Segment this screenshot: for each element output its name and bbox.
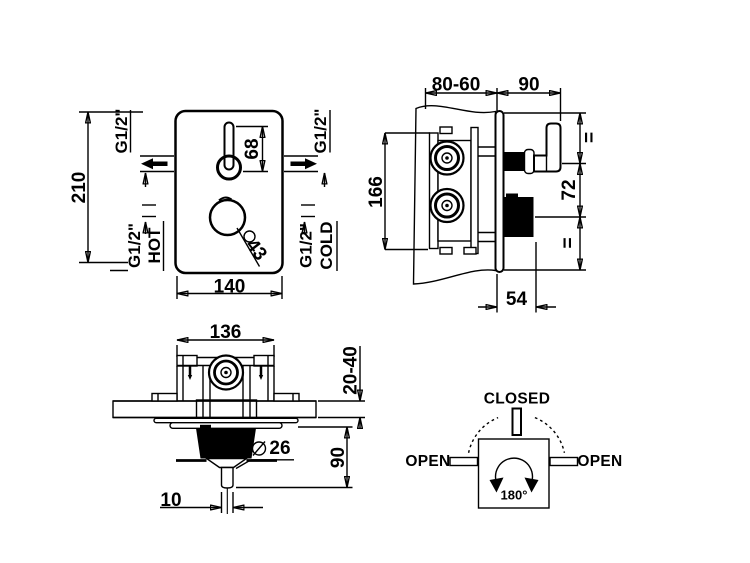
thermostat-knob-side — [504, 197, 534, 237]
port-label-bottom-right: G1/2" — [297, 223, 316, 268]
dim-wall-thickness-label: 20-40 — [341, 346, 362, 395]
drawing-svg: 210 68 43 140 G1/2" G1/2" — [0, 0, 750, 563]
screw-tip — [188, 375, 192, 380]
open-position-bar-right — [550, 458, 578, 466]
rotation-diagram: CLOSED 180° OPEN OPEN — [405, 391, 622, 509]
side-view: 80-60 90 166 = 72 = 54 — [366, 75, 601, 313]
mounting-tab — [440, 248, 452, 255]
wall-cutout — [197, 400, 257, 419]
port-dot — [445, 204, 449, 208]
port-name-hot: HOT — [145, 227, 164, 264]
wall-tab-left — [152, 394, 177, 402]
dim-plate-height-label: 210 — [69, 172, 90, 204]
knob-notch — [506, 194, 518, 198]
flow-arrow-right-icon — [291, 158, 318, 169]
dim-depth-range-label: 80-60 — [432, 75, 481, 96]
open-position-bar-left — [450, 458, 478, 466]
equal-mark-bottom: = — [558, 237, 579, 248]
screw-tip — [259, 375, 263, 380]
wall-band — [113, 401, 316, 418]
trim-plate-plan — [170, 423, 282, 429]
dim-handle-to-knob-label: 72 — [559, 179, 580, 200]
dim-handle-projection-label: 90 — [518, 75, 539, 96]
rotation-angle-label: 180° — [501, 488, 528, 503]
thermostat-knob-plan — [196, 428, 256, 458]
technical-drawing-sheet: 210 68 43 140 G1/2" G1/2" — [0, 0, 750, 563]
knob-notch — [200, 425, 211, 429]
port-dot — [445, 156, 449, 160]
bracket-ear-right — [254, 356, 274, 367]
dim-body-width-label: 136 — [210, 322, 242, 343]
lever-handle-side — [534, 124, 561, 172]
dim-lever-label: 68 — [242, 138, 263, 159]
port-label-top-left: G1/2" — [112, 109, 131, 154]
port-label-top-right: G1/2" — [311, 109, 330, 154]
equal-mark-top: = — [580, 132, 601, 143]
port-dot — [224, 371, 228, 375]
port-name-cold: COLD — [317, 221, 336, 269]
bracket-ear-left — [177, 356, 197, 367]
thermostat-knob-front — [210, 200, 245, 235]
flow-arrow-left-icon — [141, 158, 168, 169]
spout-stem — [222, 468, 234, 489]
closed-position-bar — [513, 409, 522, 436]
mounting-tab — [440, 127, 452, 134]
dim-body-height-label: 166 — [366, 176, 387, 208]
closed-label: CLOSED — [484, 391, 550, 408]
rough-in-front-rail — [471, 128, 478, 254]
lever-collar — [525, 150, 535, 174]
lever-handle — [225, 123, 234, 170]
mounting-tab — [464, 248, 476, 255]
lever-cartridge — [504, 152, 525, 171]
plan-view: 136 — [113, 322, 365, 514]
port-label-bottom-left: G1/2" — [125, 223, 144, 268]
open-left-label: OPEN — [405, 453, 450, 470]
dim-spout-diameter-label: 26 — [269, 438, 290, 459]
dim-stem-width-label: 10 — [160, 490, 181, 511]
dim-knob-projection-label: 54 — [506, 289, 528, 310]
wall-tab-right — [274, 394, 299, 402]
dim-plate-width-label: 140 — [214, 277, 246, 298]
front-view: 210 68 43 140 G1/2" G1/2" — [69, 109, 337, 299]
open-right-label: OPEN — [577, 453, 622, 470]
trim-plate-side — [496, 111, 504, 272]
dim-projection-label: 90 — [328, 447, 349, 468]
